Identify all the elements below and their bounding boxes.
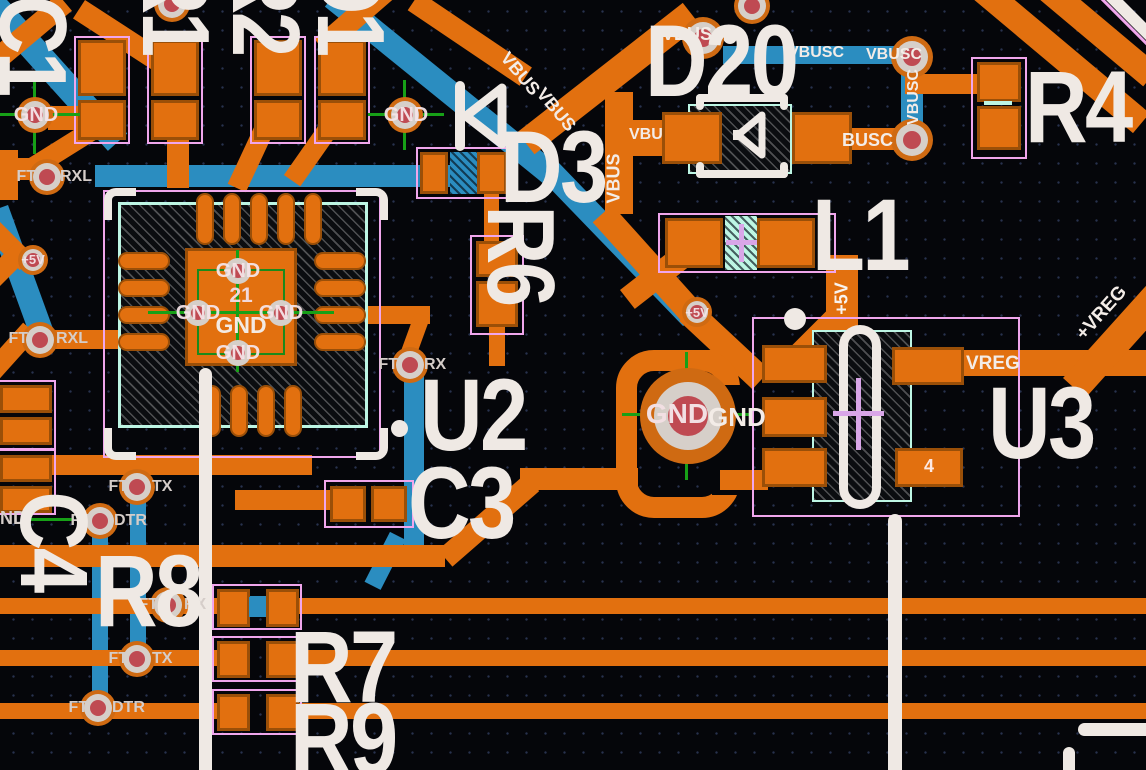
designator-c4[interactable]: C4 xyxy=(17,486,89,597)
silkscreen-d20-outline xyxy=(696,162,704,178)
silkscreen-line[interactable] xyxy=(1063,747,1075,770)
designator-r8[interactable]: R8 xyxy=(95,552,201,630)
net-label-ft-dtr[interactable]: DTR xyxy=(112,699,145,717)
net-label-5v[interactable]: +5V xyxy=(8,252,58,267)
net-label-ft-dtr[interactable]: FT xyxy=(60,699,88,717)
designator-c1[interactable]: C1 xyxy=(0,0,65,99)
designator-top-partial[interactable]: D1 xyxy=(320,0,380,56)
copper-trace[interactable] xyxy=(235,490,330,510)
courtyard xyxy=(324,480,414,528)
via-net-label: GND xyxy=(203,342,273,365)
courtyard xyxy=(971,57,1027,159)
courtyard xyxy=(212,636,302,682)
copper-trace[interactable] xyxy=(167,138,189,188)
courtyard xyxy=(212,689,302,735)
silkscreen-dot xyxy=(391,420,408,437)
polarity-mark xyxy=(833,411,884,416)
designator-l1[interactable]: L1 xyxy=(812,196,908,274)
via-net-label: GND xyxy=(203,260,273,283)
net-label-ft-tx[interactable]: TX xyxy=(152,478,172,496)
u3-pad-number: 4 xyxy=(895,456,963,477)
designator-r4[interactable]: R4 xyxy=(1025,68,1131,146)
designator-top-partial[interactable]: R2 xyxy=(235,0,295,56)
copper-trace[interactable] xyxy=(52,455,312,475)
pcb-canvas: VBUS VBUSC VBUSC VBUSC BUSC VBU VBUS VBU… xyxy=(0,0,1146,770)
silkscreen-corner xyxy=(356,188,388,220)
net-label-ft-rxl[interactable]: FT xyxy=(2,168,36,186)
net-label-gnd[interactable]: GND xyxy=(708,402,766,433)
silkscreen-dot xyxy=(784,308,806,330)
courtyard-u3 xyxy=(752,317,1020,517)
net-label-5v[interactable]: +5V xyxy=(672,305,722,320)
courtyard xyxy=(0,380,56,450)
net-label-busc[interactable]: BUSC xyxy=(842,130,893,151)
net-label-vbus[interactable]: VBUS xyxy=(604,143,625,215)
designator-top-partial[interactable]: R1 xyxy=(145,0,205,56)
net-label-ft-rxl[interactable]: RXL xyxy=(56,330,88,348)
net-label-ft-rxl[interactable]: FT xyxy=(0,330,28,348)
copper-trace[interactable] xyxy=(520,468,638,490)
net-label-gnd[interactable]: GND xyxy=(6,104,66,127)
designator-u3[interactable]: U3 xyxy=(988,384,1094,462)
copper-trace[interactable] xyxy=(297,598,1146,614)
designator-c3[interactable]: C3 xyxy=(408,464,514,542)
net-label-ft-rx[interactable]: FT xyxy=(370,356,398,374)
silkscreen-line[interactable] xyxy=(888,514,902,770)
net-label-ft-tx[interactable]: TX xyxy=(152,650,172,668)
net-label-ft-tx[interactable]: FT xyxy=(100,650,128,668)
silkscreen-d20-outline xyxy=(696,170,788,178)
designator-r9[interactable]: R9 xyxy=(290,700,396,770)
designator-d20[interactable]: D20 xyxy=(645,22,796,100)
copper-trace[interactable] xyxy=(297,650,1146,666)
designator-u2[interactable]: U2 xyxy=(420,376,526,454)
polarity-mark xyxy=(726,240,757,245)
silkscreen-corner xyxy=(104,428,136,460)
net-label-vbu[interactable]: VBU xyxy=(629,126,663,144)
silkscreen-corner xyxy=(104,188,136,220)
silkscreen-d20-outline xyxy=(780,162,788,178)
net-label-vbusc[interactable]: VBUSC xyxy=(905,61,923,133)
net-label-ft-dtr[interactable]: DTR xyxy=(114,512,147,530)
silkscreen-line[interactable] xyxy=(199,368,212,770)
courtyard xyxy=(212,584,302,630)
net-label-ft-rxl[interactable]: RXL xyxy=(60,168,92,186)
silkscreen-line[interactable] xyxy=(1078,723,1146,736)
designator-r6[interactable]: R6 xyxy=(483,202,557,307)
net-label-gnd[interactable]: GND xyxy=(376,104,436,127)
copper-trace[interactable] xyxy=(297,703,1146,719)
silkscreen-corner xyxy=(356,428,388,460)
designator-d3[interactable]: D3 xyxy=(500,128,606,206)
u2-pad-number: 21 xyxy=(206,284,276,308)
u2-pad-net: GND xyxy=(206,312,276,339)
component-pad[interactable] xyxy=(662,112,722,164)
